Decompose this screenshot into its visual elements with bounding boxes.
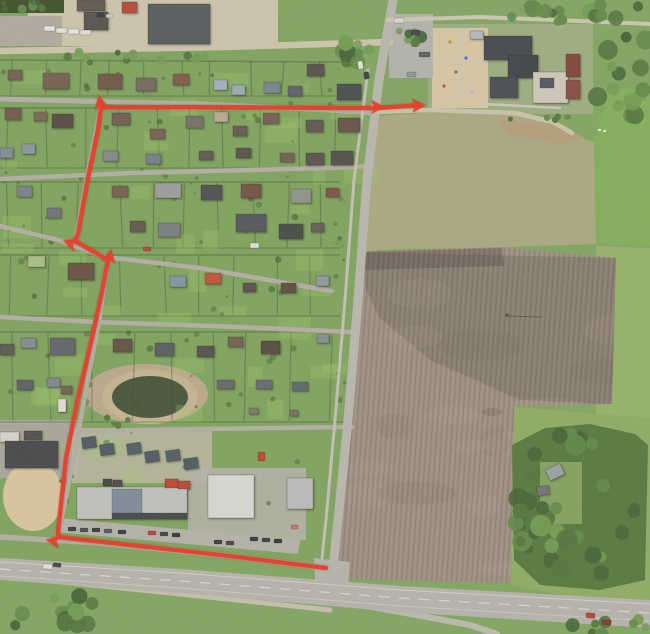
aerial-map-viewport[interactable] — [0, 0, 650, 634]
aerial-map-canvas — [0, 0, 650, 634]
